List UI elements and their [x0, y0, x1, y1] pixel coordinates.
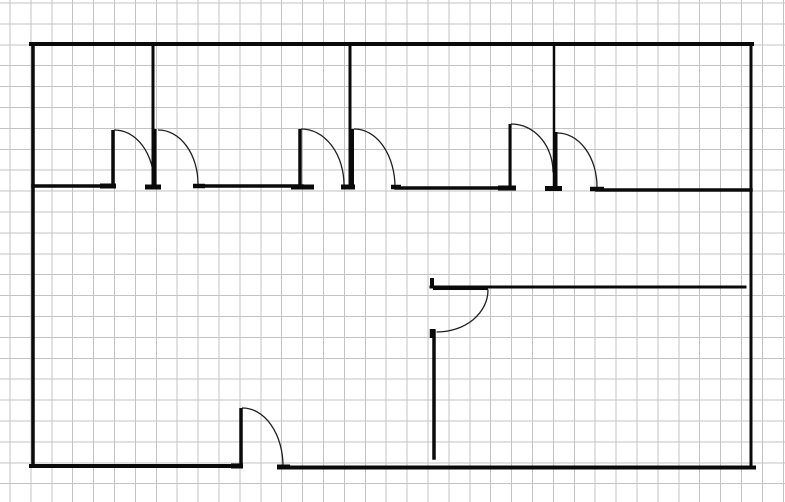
- floor-plan-canvas: [0, 0, 785, 502]
- door-1-arc: [115, 130, 155, 183]
- door-2-arc: [159, 130, 199, 184]
- door-8-arc: [437, 290, 488, 332]
- door-6-arc: [558, 133, 598, 187]
- door-jamb-layer: [100, 186, 604, 467]
- door-leaf-layer: [113, 124, 556, 465]
- floor-plan: [0, 0, 785, 502]
- door-swing-layer: [115, 124, 598, 466]
- door-4-arc: [355, 129, 396, 187]
- grid-layer: [0, 0, 785, 502]
- door-7-arc: [243, 408, 284, 466]
- door-3-arc: [302, 129, 345, 185]
